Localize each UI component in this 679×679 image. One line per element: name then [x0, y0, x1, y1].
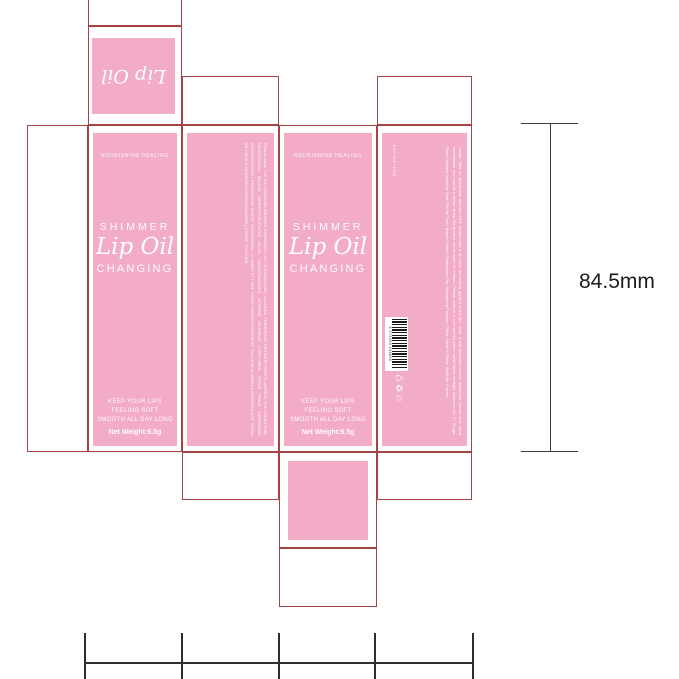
barcode-digits: 6 972493 216890	[387, 319, 392, 369]
brand-logo-text: Lip Oil	[93, 234, 177, 260]
changing-text: CHANGING	[93, 263, 177, 275]
brand-block: SHIMMER Lip Oil CHANGING	[93, 221, 177, 275]
dieline-top-dust-flap	[88, 0, 182, 26]
front-panel-2: NOURISHING HEALING SHIMMER Lip Oil CHANG…	[284, 133, 372, 446]
dieline-bottom-flap-4	[377, 452, 472, 500]
claims-block: KEEP YOUR LIPS FEELING SOFT SMOOTH ALL D…	[284, 398, 372, 436]
barcode: 6 972493 216890	[385, 317, 408, 371]
packaging-icons: ♺ ♻ ♲	[394, 374, 404, 402]
dieline-bottom-dust-flap	[279, 548, 377, 607]
packaging-dieline-canvas: Lip Oil NOURISHING HEALING SHIMMER Lip O…	[0, 0, 679, 679]
recycle-icon: ♻	[394, 384, 404, 392]
tagline-text: NOURISHING HEALING	[93, 153, 177, 159]
dieline-bottom-flap-2	[182, 452, 279, 500]
barcode-bars	[392, 319, 407, 369]
width-dimension-tick-4	[374, 633, 376, 679]
claim-line: FEELING SOFT	[284, 407, 372, 416]
dieline-top-flap-2	[182, 76, 279, 125]
green-dot-icon: ♺	[394, 374, 404, 382]
height-dimension-tick-bottom	[521, 451, 578, 452]
brand-block: SHIMMER Lip Oil CHANGING	[284, 221, 372, 275]
top-flap-print: Lip Oil	[92, 38, 175, 114]
ingredients-text: Product name : LIP OIL CHANGING SHIMMER …	[193, 143, 268, 436]
ingredients-panel: Product name : LIP OIL CHANGING SHIMMER …	[187, 133, 274, 446]
dieline-glue-flap	[27, 125, 88, 452]
width-dimension-tick-1	[84, 633, 86, 679]
claim-line: KEEP YOUR LIPS	[93, 398, 177, 407]
changing-text: CHANGING	[284, 263, 372, 275]
exp-code-text: EXP:20271006	[392, 145, 397, 177]
usage-text: Usage: Take an appropriate amount of thi…	[405, 147, 463, 435]
tagline-text: NOURISHING HEALING	[284, 153, 372, 159]
width-dimension-tick-3	[278, 633, 280, 679]
height-dimension-tick-top	[521, 123, 578, 124]
claim-line: SMOOTH ALL DAY LONG	[93, 416, 177, 425]
shimmer-text: SHIMMER	[284, 221, 372, 233]
height-dimension-label: 84.5mm	[579, 270, 655, 294]
top-flap-logo: Lip Oil	[92, 38, 175, 114]
width-dimension-tick-5	[472, 633, 474, 679]
claim-line: FEELING SOFT	[93, 407, 177, 416]
claim-line: SMOOTH ALL DAY LONG	[284, 416, 372, 425]
dispose-properly-icon: ♲	[394, 394, 404, 402]
brand-logo-text: Lip Oil	[284, 234, 372, 260]
dieline-top-flap-4	[377, 76, 472, 125]
shimmer-text: SHIMMER	[93, 221, 177, 233]
claim-line: KEEP YOUR LIPS	[284, 398, 372, 407]
claims-block: KEEP YOUR LIPS FEELING SOFT SMOOTH ALL D…	[93, 398, 177, 436]
info-panel: Usage: Take an appropriate amount of thi…	[382, 133, 467, 446]
bottom-flap-print	[288, 461, 368, 540]
width-dimension-tick-2	[181, 633, 183, 679]
net-weight-text: Net Weight:6.5g	[284, 429, 372, 436]
front-panel-1: NOURISHING HEALING SHIMMER Lip Oil CHANG…	[93, 133, 177, 446]
height-dimension-line	[550, 123, 551, 452]
net-weight-text: Net Weight:6.5g	[93, 429, 177, 436]
